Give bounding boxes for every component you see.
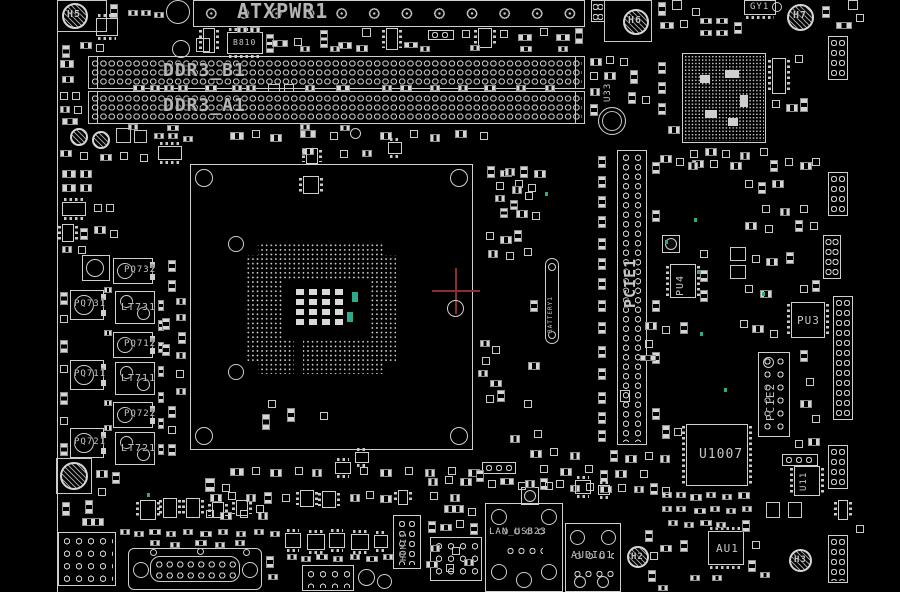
ic-chip bbox=[335, 462, 351, 474]
mosfet-pq731-label: PQ731 bbox=[74, 300, 106, 309]
smd-resistor bbox=[60, 443, 68, 456]
chip-pins bbox=[208, 504, 211, 516]
dsub-screw bbox=[242, 562, 258, 578]
socket-hole bbox=[228, 236, 244, 252]
smd-resistor bbox=[62, 118, 78, 125]
smd-cap bbox=[462, 30, 470, 38]
connector-pins bbox=[61, 535, 113, 583]
pcie-aux-connector-label: PCIE2 bbox=[765, 383, 776, 421]
smd-resistor bbox=[598, 392, 606, 404]
smd-cap bbox=[640, 470, 648, 478]
smd-cap bbox=[256, 505, 264, 513]
smd-resistor bbox=[158, 418, 164, 429]
inductor-u33-label: U33 bbox=[604, 83, 613, 102]
smd-resistor bbox=[158, 300, 164, 311]
smd-resistor bbox=[266, 556, 274, 568]
smd-cap bbox=[770, 330, 778, 338]
connector-pins bbox=[830, 174, 846, 214]
mosfet-pad bbox=[101, 310, 106, 316]
smd-cap bbox=[116, 128, 131, 143]
smd-resistor bbox=[700, 18, 712, 24]
smd-cap bbox=[176, 370, 184, 378]
smd-cap bbox=[550, 448, 558, 456]
smd-cap bbox=[690, 150, 698, 158]
smd-resistor bbox=[270, 134, 282, 142]
smd-resistor bbox=[250, 27, 260, 33]
smd-resistor bbox=[128, 10, 138, 16]
ic-chip bbox=[236, 500, 248, 516]
smd-resistor bbox=[700, 290, 708, 302]
smd-cap bbox=[134, 130, 147, 143]
ic-chip bbox=[575, 480, 591, 494]
smd-resistor bbox=[770, 160, 778, 172]
smd-resistor bbox=[530, 450, 542, 458]
smd-resistor bbox=[676, 506, 686, 512]
smd-resistor bbox=[752, 325, 764, 333]
smd-resistor bbox=[380, 469, 392, 477]
smd-resistor bbox=[604, 72, 616, 80]
smd-resistor bbox=[598, 176, 606, 188]
smd-cap bbox=[362, 28, 371, 37]
smd-resistor bbox=[205, 478, 215, 492]
pad-field-notch bbox=[384, 243, 396, 255]
connector-pins bbox=[830, 537, 846, 581]
smd-resistor bbox=[215, 542, 225, 548]
smd-resistor bbox=[168, 133, 178, 139]
smd-resistor bbox=[178, 85, 188, 91]
smd-resistor bbox=[710, 506, 720, 512]
smd-cap bbox=[268, 400, 276, 408]
smd-cap bbox=[295, 467, 303, 475]
round-component bbox=[350, 128, 361, 139]
smd-resistor bbox=[183, 529, 193, 535]
smd-resistor bbox=[430, 545, 440, 552]
pad-field-notch bbox=[384, 362, 396, 374]
smd-cap bbox=[645, 452, 653, 460]
smd-cap bbox=[222, 484, 230, 492]
smd-resistor bbox=[610, 450, 618, 462]
smd-resistor bbox=[154, 133, 164, 139]
smd-resistor bbox=[676, 492, 686, 498]
smd-resistor bbox=[836, 22, 852, 29]
cavity-cap bbox=[309, 319, 317, 325]
smd-cap bbox=[575, 91, 585, 124]
smd-cap bbox=[528, 184, 536, 192]
cavity-cap bbox=[296, 299, 304, 305]
connector-pins bbox=[484, 464, 514, 472]
smd-resistor bbox=[700, 270, 708, 282]
smd-cap bbox=[730, 247, 746, 261]
smd-resistor bbox=[780, 208, 790, 216]
smd-resistor bbox=[652, 162, 660, 174]
smd-resistor bbox=[476, 470, 484, 482]
smd-array bbox=[82, 518, 104, 526]
smd-cap bbox=[645, 340, 653, 348]
smd-resistor bbox=[362, 150, 372, 157]
inductor-lt721-label: LT721 bbox=[121, 444, 156, 454]
smd-cap bbox=[340, 150, 348, 158]
chip-pins bbox=[577, 476, 589, 479]
smd-cap bbox=[525, 192, 533, 200]
ic-chip bbox=[186, 498, 200, 518]
smd-cap bbox=[620, 58, 628, 66]
connector-pins bbox=[825, 237, 839, 277]
battery-pin bbox=[548, 263, 556, 271]
smd-cap bbox=[700, 250, 708, 258]
smd-resistor bbox=[176, 314, 186, 321]
smd-resistor bbox=[141, 10, 151, 16]
smd-resistor bbox=[598, 258, 606, 270]
smd-resistor bbox=[426, 561, 438, 568]
smd-resistor bbox=[645, 530, 653, 542]
smd-resistor bbox=[133, 85, 145, 91]
smd-resistor bbox=[450, 494, 460, 502]
smd-cap bbox=[662, 487, 670, 495]
mounting-hole bbox=[92, 131, 110, 149]
smd-resistor bbox=[382, 85, 392, 91]
smd-resistor bbox=[455, 130, 467, 138]
cavity-cap bbox=[296, 319, 304, 325]
smd-resistor bbox=[62, 502, 70, 516]
ic-chip bbox=[306, 148, 318, 164]
smd-cap bbox=[320, 412, 328, 420]
smd-resistor bbox=[726, 508, 736, 514]
ic-chip bbox=[285, 533, 301, 548]
chip-pins bbox=[201, 500, 204, 516]
smd-cap bbox=[766, 502, 780, 518]
dimm-slot-ddr3-b1-label: DDR3_B1 bbox=[163, 62, 246, 80]
smd-cap bbox=[856, 525, 864, 533]
smd-cap bbox=[88, 91, 98, 124]
smd-resistor bbox=[528, 362, 540, 370]
cavity-cap bbox=[335, 309, 343, 315]
smd-resistor bbox=[650, 483, 658, 495]
smd-resistor bbox=[60, 392, 68, 405]
smd-resistor bbox=[495, 195, 505, 202]
dimm-slot-ddr3-a1-label: DDR3_A1 bbox=[163, 97, 246, 115]
smd-resistor bbox=[287, 408, 295, 422]
smd-resistor bbox=[690, 494, 702, 501]
smd-resistor bbox=[268, 574, 278, 580]
smd-resistor bbox=[772, 180, 784, 188]
smd-resistor bbox=[520, 46, 532, 52]
ic-chip bbox=[388, 142, 402, 154]
smd-cap bbox=[60, 365, 68, 373]
smd-resistor bbox=[716, 18, 728, 24]
smd-cap bbox=[488, 480, 496, 488]
chip-pins bbox=[577, 495, 589, 498]
chip-pins bbox=[287, 549, 299, 552]
smd-cap bbox=[556, 480, 564, 488]
smd-resistor bbox=[530, 300, 538, 312]
chip-pins bbox=[232, 502, 235, 514]
smd-resistor bbox=[660, 545, 672, 552]
motherboard-boardview: ATXPWR1B810DDR3_B1DDR3_A1H5H6H7GY1U33PCI… bbox=[0, 0, 900, 592]
chip-pins bbox=[337, 493, 340, 506]
chip-pins bbox=[790, 468, 793, 494]
smd-resistor bbox=[660, 455, 670, 463]
mosfet-tab bbox=[86, 259, 104, 277]
via-marker bbox=[762, 292, 765, 296]
chip-pins bbox=[353, 530, 367, 533]
smd-resistor bbox=[80, 42, 92, 49]
socket-hole bbox=[228, 364, 244, 380]
smd-resistor bbox=[460, 478, 472, 486]
smd-resistor bbox=[218, 529, 228, 535]
round-component bbox=[447, 300, 464, 317]
ic-chip bbox=[140, 500, 156, 520]
smd-resistor bbox=[740, 152, 750, 160]
chip-pins bbox=[357, 448, 367, 451]
chip-pins bbox=[390, 138, 400, 141]
smd-cap bbox=[762, 205, 770, 213]
round-component bbox=[772, 2, 782, 12]
pad-field-notch bbox=[246, 243, 258, 255]
smd-resistor bbox=[497, 390, 505, 402]
smd-resistor bbox=[615, 470, 627, 478]
smd-cap bbox=[810, 222, 818, 230]
smd-cap bbox=[88, 56, 98, 89]
smd-resistor bbox=[766, 258, 778, 266]
smd-resistor bbox=[800, 400, 812, 408]
smd-resistor bbox=[162, 344, 170, 356]
port-pin bbox=[516, 572, 532, 588]
smd-resistor bbox=[598, 346, 606, 358]
smd-resistor bbox=[510, 200, 518, 210]
smd-cap bbox=[252, 467, 260, 475]
smd-resistor bbox=[176, 298, 186, 305]
smd-cap bbox=[540, 465, 548, 473]
index-mark bbox=[763, 357, 774, 368]
smd-resistor bbox=[658, 103, 666, 115]
smd-cap bbox=[60, 315, 68, 323]
chip-pins bbox=[318, 493, 321, 506]
smd-resistor bbox=[312, 469, 322, 477]
bga-pads bbox=[684, 55, 764, 141]
cavity-cap bbox=[309, 299, 317, 305]
chip-pins bbox=[337, 458, 349, 461]
smd-cap bbox=[642, 96, 650, 104]
smd-resistor bbox=[168, 406, 176, 418]
smd-cap bbox=[745, 180, 753, 188]
smd-cap bbox=[60, 417, 68, 425]
smd-resistor bbox=[668, 126, 680, 134]
smd-cap bbox=[795, 440, 803, 448]
smd-resistor bbox=[488, 250, 498, 258]
smd-resistor bbox=[166, 531, 176, 537]
smd-cap bbox=[74, 106, 82, 114]
smd-cap bbox=[730, 265, 746, 279]
smd-resistor bbox=[706, 492, 716, 498]
smd-resistor bbox=[800, 350, 808, 362]
port-pins bbox=[505, 545, 543, 557]
chip-pins bbox=[331, 529, 343, 532]
connector-pins bbox=[593, 2, 603, 20]
smd-resistor bbox=[598, 412, 606, 424]
smd-resistor bbox=[694, 508, 706, 514]
smd-resistor bbox=[512, 186, 522, 194]
smd-cap bbox=[252, 130, 260, 138]
smd-resistor bbox=[760, 572, 770, 578]
chip-pins bbox=[160, 161, 180, 164]
chip-pins bbox=[474, 30, 477, 46]
smd-cap bbox=[196, 38, 210, 52]
ic-pu4-label: PU4 bbox=[676, 275, 686, 296]
smd-cap bbox=[672, 0, 682, 10]
ic-chip bbox=[355, 452, 369, 463]
via-marker bbox=[694, 218, 697, 222]
chip-pins bbox=[320, 178, 323, 192]
smd-resistor bbox=[458, 85, 468, 91]
smd-cap bbox=[740, 320, 748, 328]
smd-cap bbox=[282, 494, 290, 502]
smd-resistor bbox=[645, 322, 657, 330]
cavity-cap bbox=[335, 289, 343, 295]
smd-resistor bbox=[60, 340, 68, 353]
smd-cap bbox=[60, 92, 68, 100]
smd-resistor bbox=[236, 531, 246, 537]
smd-cap bbox=[140, 154, 148, 162]
cavity-cap bbox=[296, 309, 304, 315]
smd-cap bbox=[680, 20, 688, 28]
smd-cap bbox=[486, 395, 494, 403]
smd-cap bbox=[506, 252, 514, 260]
smd-resistor bbox=[366, 556, 378, 562]
chip-pins bbox=[225, 504, 228, 516]
ic-chip bbox=[163, 498, 177, 518]
inductor-lt731-label: LT731 bbox=[121, 303, 156, 313]
smd-resistor bbox=[120, 529, 130, 535]
smd-cap bbox=[662, 326, 670, 334]
smd-resistor bbox=[570, 452, 580, 460]
smd-resistor bbox=[505, 168, 515, 176]
port-pin bbox=[541, 564, 557, 580]
smd-resistor bbox=[270, 531, 280, 537]
smd-resistor bbox=[742, 520, 750, 532]
smd-resistor bbox=[658, 82, 666, 94]
smd-resistor bbox=[500, 236, 512, 244]
smd-cap bbox=[268, 84, 280, 92]
smd-resistor bbox=[800, 162, 812, 170]
smd-resistor bbox=[420, 46, 430, 52]
smd-resistor bbox=[272, 40, 288, 47]
via-marker bbox=[665, 240, 668, 244]
chip-pins bbox=[666, 266, 669, 296]
smd-resistor bbox=[164, 85, 174, 91]
smd-resistor bbox=[470, 45, 480, 51]
socket-hole bbox=[450, 169, 468, 187]
smd-cap bbox=[806, 378, 814, 386]
smd-cap bbox=[72, 92, 80, 100]
smd-resistor bbox=[598, 322, 606, 334]
smd-resistor bbox=[62, 246, 72, 253]
smd-cap bbox=[524, 248, 532, 256]
dsub-pin bbox=[243, 549, 250, 556]
smd-resistor bbox=[158, 392, 164, 403]
smd-resistor bbox=[598, 216, 606, 228]
smd-cap bbox=[575, 56, 585, 89]
smd-cap bbox=[772, 100, 780, 108]
mosfet-pq721-label: PQ721 bbox=[74, 438, 106, 447]
hdmi-connector-label: HDMI1 bbox=[400, 532, 408, 561]
chip-pins bbox=[64, 217, 84, 220]
smd-resistor bbox=[590, 58, 602, 66]
smd-resistor bbox=[150, 85, 160, 91]
smd-resistor bbox=[104, 400, 112, 406]
smd-resistor bbox=[478, 370, 488, 377]
cavity-cap-green bbox=[347, 312, 353, 322]
smd-cap bbox=[284, 84, 294, 92]
smd-resistor bbox=[700, 520, 712, 526]
socket-hole bbox=[195, 427, 213, 445]
smd-cap bbox=[606, 56, 614, 64]
mosfet-pq732-label: PQ732 bbox=[124, 266, 156, 275]
chip-pins bbox=[64, 198, 84, 201]
smd-cap bbox=[848, 0, 858, 10]
smd-resistor bbox=[230, 468, 244, 476]
smd-resistor bbox=[660, 155, 672, 163]
ic-chip bbox=[62, 224, 74, 242]
cavity-cap bbox=[335, 299, 343, 305]
smd-resistor bbox=[742, 506, 752, 512]
smd-resistor bbox=[237, 27, 247, 33]
smd-cap bbox=[480, 132, 488, 140]
smd-cap bbox=[452, 547, 460, 555]
smd-resistor bbox=[380, 495, 392, 503]
smd-resistor bbox=[470, 523, 478, 535]
chip-pins bbox=[302, 150, 305, 162]
smd-resistor bbox=[652, 408, 660, 420]
smd-resistor bbox=[168, 280, 176, 292]
pad-field-notch bbox=[246, 362, 258, 374]
ic-chip bbox=[398, 490, 408, 505]
chip-pins bbox=[309, 530, 323, 533]
smd-resistor bbox=[230, 132, 244, 140]
smd-resistor bbox=[625, 455, 637, 463]
smd-cap bbox=[856, 14, 864, 22]
smd-resistor bbox=[734, 22, 742, 34]
chip-pins bbox=[159, 500, 162, 516]
port-pin bbox=[541, 509, 557, 525]
cavity-cap bbox=[322, 309, 330, 315]
chip-pins bbox=[390, 155, 400, 158]
mosfet-pq711-label: PQ711 bbox=[74, 370, 106, 379]
chip-pins bbox=[787, 60, 790, 92]
mounting-hole-h3-label: H3 bbox=[794, 556, 807, 565]
ic-u1007-label: U1007 bbox=[699, 448, 743, 461]
chip-pins bbox=[376, 549, 386, 552]
socket-hole bbox=[450, 427, 468, 445]
smd-resistor bbox=[425, 469, 435, 477]
smd-cap bbox=[94, 204, 102, 212]
inductor-u33 bbox=[598, 107, 626, 135]
smd-cap bbox=[765, 225, 773, 233]
chip-pins bbox=[849, 502, 852, 518]
cavity-cap bbox=[322, 299, 330, 305]
dsub-pin bbox=[150, 549, 157, 556]
port-pin bbox=[574, 576, 586, 588]
smd-cap bbox=[496, 182, 504, 190]
smd-cap bbox=[482, 357, 490, 365]
smd-resistor bbox=[705, 148, 717, 156]
smd-cap bbox=[532, 212, 540, 220]
ic-chip bbox=[598, 485, 610, 495]
dsub-pins bbox=[154, 559, 236, 580]
smd-cap bbox=[785, 158, 793, 166]
smd-resistor bbox=[598, 156, 606, 168]
smd-resistor bbox=[430, 85, 440, 91]
pad-field-gap bbox=[294, 338, 303, 374]
